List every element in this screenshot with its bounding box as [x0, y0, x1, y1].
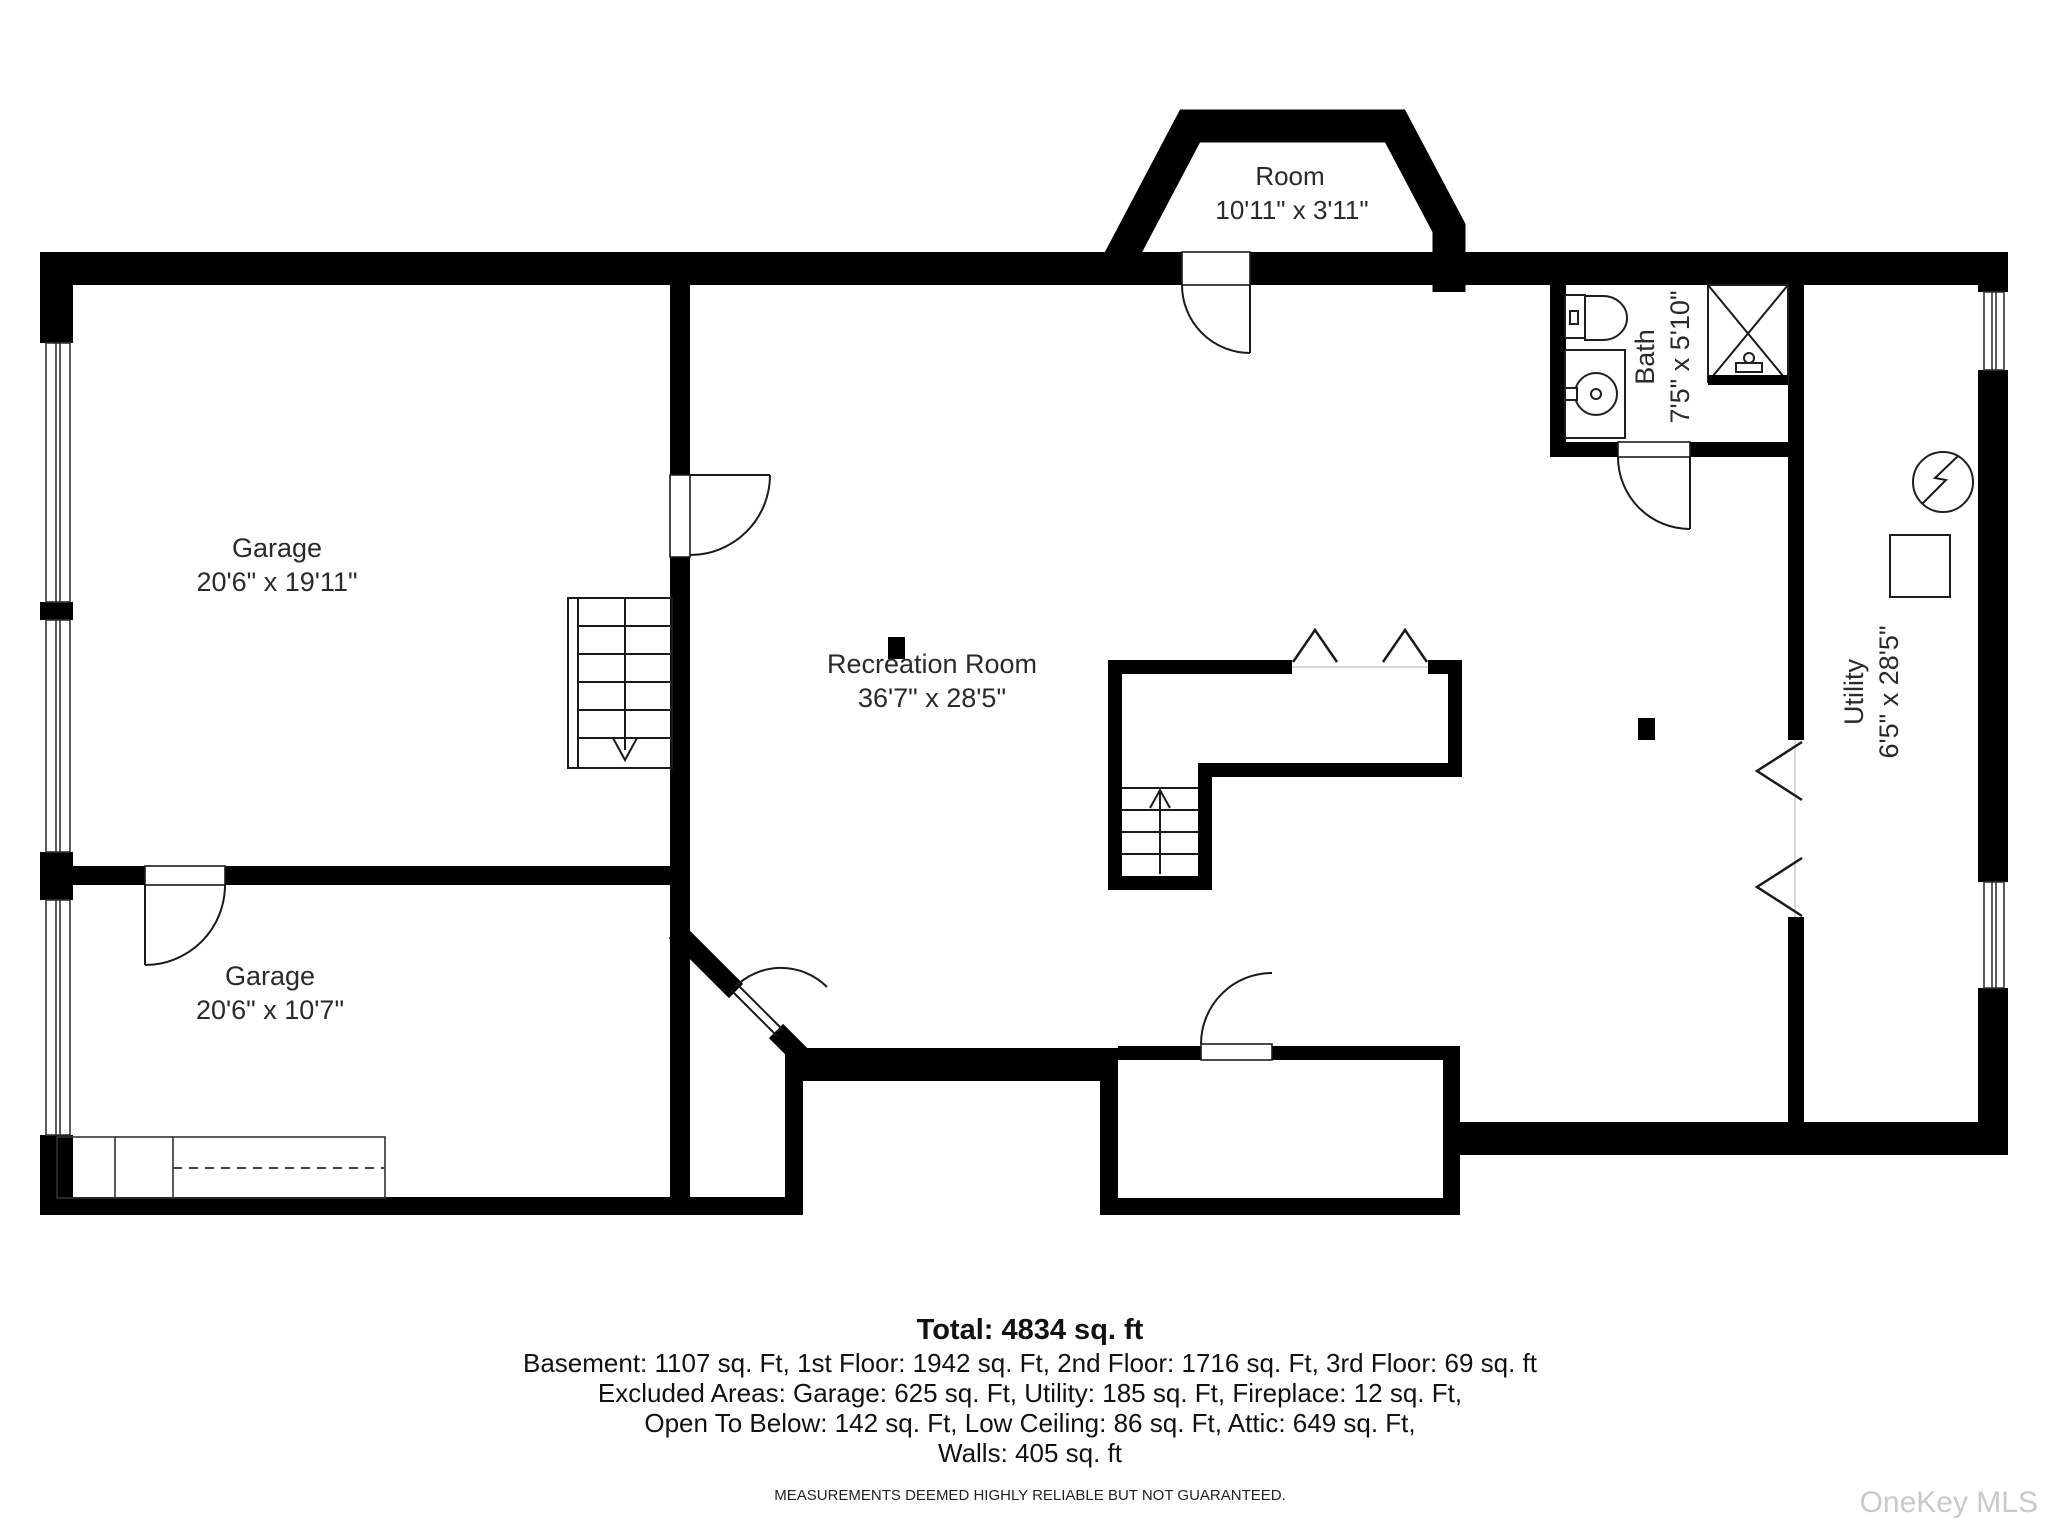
room-labels: Garage 20'6" x 19'11" Garage 20'6" x 10'…	[196, 161, 1904, 1025]
garage-divider-door	[145, 866, 225, 965]
utility-window-top	[1978, 292, 2008, 370]
disclaimer-text: MEASUREMENTS DEEMED HIGHLY RELIABLE BUT …	[774, 1487, 1286, 1504]
utility-label: Utility	[1839, 659, 1869, 725]
bay-room-label: Room	[1255, 161, 1324, 191]
garage-lower-dims: 20'6" x 10'7"	[196, 995, 344, 1025]
center-stairs-up-icon	[1122, 788, 1198, 874]
garage-lower-label: Garage	[225, 961, 315, 991]
excluded-area-text-2: Open To Below: 142 sq. Ft, Low Ceiling: …	[644, 1408, 1415, 1438]
shower-icon	[1708, 285, 1788, 385]
walls-area-text: Walls: 405 sq. ft	[938, 1438, 1123, 1468]
support-column	[1638, 718, 1655, 740]
total-area-text: Total: 4834 sq. ft	[917, 1314, 1144, 1346]
garage-door-window-1	[40, 343, 73, 602]
diagonal-door	[731, 968, 827, 1036]
garage-rec-door	[670, 475, 770, 557]
bath-label: Bath	[1630, 329, 1660, 385]
break-chevron-icon	[1293, 630, 1337, 662]
bay-room-dims: 10'11" x 3'11"	[1215, 195, 1368, 225]
bath-dims: 7'5" x 5'10"	[1665, 290, 1695, 423]
floor-plan-page: Garage 20'6" x 19'11" Garage 20'6" x 10'…	[0, 0, 2048, 1536]
toilet-icon	[1565, 295, 1627, 340]
garage-upper-dims: 20'6" x 19'11"	[196, 567, 357, 597]
garage-door-window-2	[40, 620, 73, 852]
utility-box-icon	[1890, 535, 1950, 597]
bath-door	[1618, 442, 1690, 529]
excluded-area-text: Excluded Areas: Garage: 625 sq. Ft, Util…	[598, 1378, 1462, 1408]
area-summary: Total: 4834 sq. ft Basement: 1107 sq. Ft…	[523, 1314, 1538, 1504]
garage-door-window-3	[40, 900, 73, 1135]
bay-room-door	[1182, 252, 1250, 353]
alcove-door	[1201, 973, 1272, 1060]
recreation-room-label: Recreation Room	[827, 649, 1037, 679]
recreation-room-dims: 36'7" x 28'5"	[858, 683, 1006, 713]
sink-icon	[1565, 350, 1625, 438]
workbench-counter	[57, 1137, 385, 1198]
floors-area-text: Basement: 1107 sq. Ft, 1st Floor: 1942 s…	[523, 1348, 1538, 1378]
utility-window-bottom	[1978, 882, 2008, 988]
break-chevron-icon	[1383, 630, 1427, 662]
utility-dims: 6'5" x 28'5"	[1874, 625, 1904, 758]
garage-upper-label: Garage	[232, 533, 322, 563]
electrical-panel-icon	[1913, 452, 1973, 512]
watermark: OneKey MLS	[1860, 1486, 2038, 1519]
floor-plan: Garage 20'6" x 19'11" Garage 20'6" x 10'…	[0, 0, 2048, 1536]
garage-stairs-down-icon	[568, 598, 672, 768]
